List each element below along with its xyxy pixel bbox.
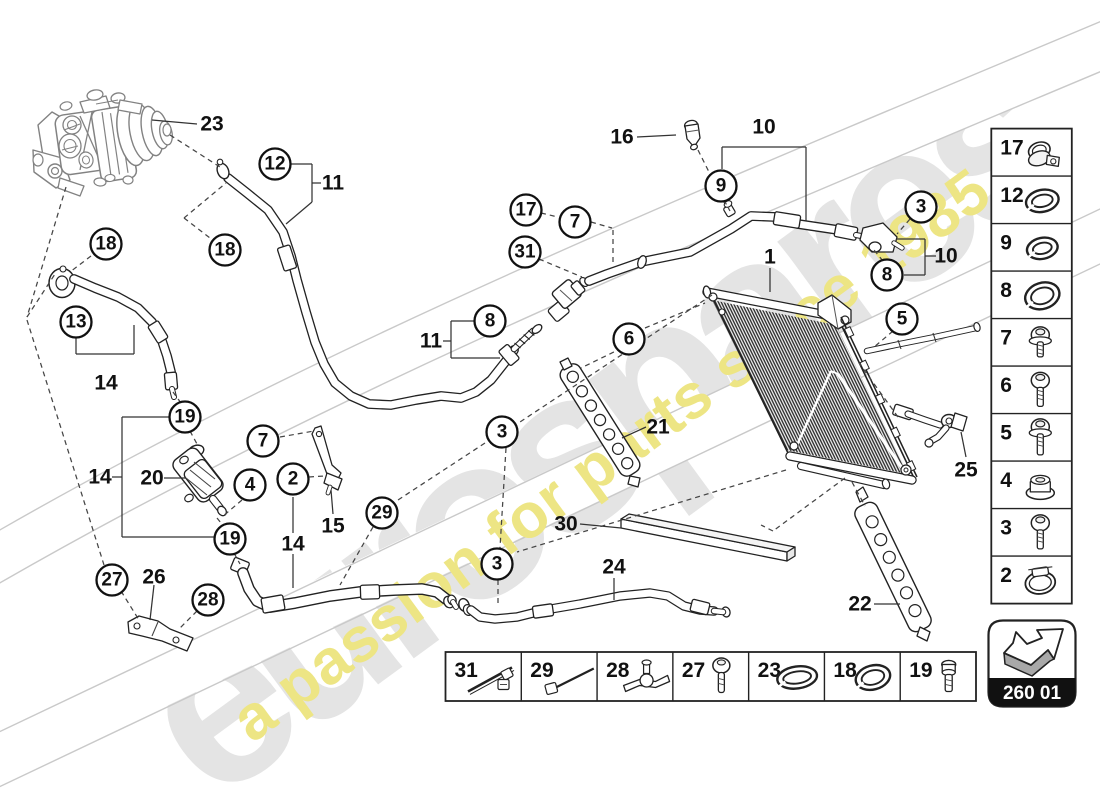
svg-text:20: 20 — [140, 467, 163, 490]
svg-text:21: 21 — [646, 416, 670, 439]
svg-text:11: 11 — [420, 330, 443, 353]
svg-text:3: 3 — [497, 422, 508, 443]
svg-text:29: 29 — [371, 503, 392, 524]
svg-text:13: 13 — [65, 312, 86, 333]
svg-text:3: 3 — [492, 554, 503, 575]
svg-text:11: 11 — [322, 172, 345, 195]
svg-text:7: 7 — [258, 431, 269, 452]
svg-text:4: 4 — [1000, 469, 1012, 492]
svg-text:17: 17 — [515, 200, 536, 221]
svg-text:2: 2 — [288, 469, 299, 490]
svg-text:29: 29 — [530, 659, 553, 682]
svg-text:1: 1 — [764, 246, 776, 269]
svg-text:12: 12 — [1000, 184, 1023, 207]
svg-text:18: 18 — [95, 234, 116, 255]
svg-text:6: 6 — [624, 329, 635, 350]
svg-text:8: 8 — [882, 265, 893, 286]
svg-text:23: 23 — [200, 113, 223, 136]
svg-text:8: 8 — [485, 311, 496, 332]
svg-text:260 01: 260 01 — [1003, 683, 1062, 704]
svg-text:8: 8 — [1000, 279, 1012, 302]
svg-text:19: 19 — [219, 529, 240, 550]
svg-text:18: 18 — [214, 240, 235, 261]
svg-text:24: 24 — [602, 556, 626, 579]
svg-text:14: 14 — [88, 466, 112, 489]
svg-text:5: 5 — [1000, 422, 1012, 445]
svg-text:16: 16 — [610, 126, 633, 149]
svg-text:31: 31 — [455, 659, 479, 682]
svg-text:19: 19 — [174, 407, 195, 428]
svg-text:31: 31 — [514, 242, 536, 263]
svg-text:3: 3 — [1000, 517, 1012, 540]
svg-text:22: 22 — [848, 593, 871, 616]
svg-text:10: 10 — [934, 245, 957, 268]
svg-text:28: 28 — [606, 659, 630, 682]
svg-text:27: 27 — [682, 659, 705, 682]
svg-text:3: 3 — [916, 197, 927, 218]
svg-text:10: 10 — [752, 116, 775, 139]
svg-text:26: 26 — [142, 566, 165, 589]
svg-text:6: 6 — [1000, 374, 1012, 397]
svg-text:9: 9 — [716, 176, 727, 197]
svg-text:14: 14 — [94, 372, 118, 395]
svg-text:19: 19 — [909, 659, 932, 682]
svg-text:18: 18 — [833, 659, 857, 682]
svg-text:4: 4 — [245, 475, 256, 496]
svg-text:17: 17 — [1000, 137, 1023, 160]
svg-text:5: 5 — [897, 309, 908, 330]
svg-text:12: 12 — [264, 154, 285, 175]
svg-text:2: 2 — [1000, 564, 1012, 587]
svg-text:30: 30 — [554, 513, 577, 536]
svg-text:27: 27 — [101, 570, 122, 591]
svg-text:14: 14 — [281, 533, 305, 556]
svg-text:9: 9 — [1000, 232, 1012, 255]
svg-text:25: 25 — [954, 459, 978, 482]
svg-text:28: 28 — [197, 590, 218, 611]
svg-text:7: 7 — [1000, 327, 1012, 350]
svg-text:15: 15 — [321, 515, 345, 538]
svg-text:7: 7 — [570, 212, 581, 233]
